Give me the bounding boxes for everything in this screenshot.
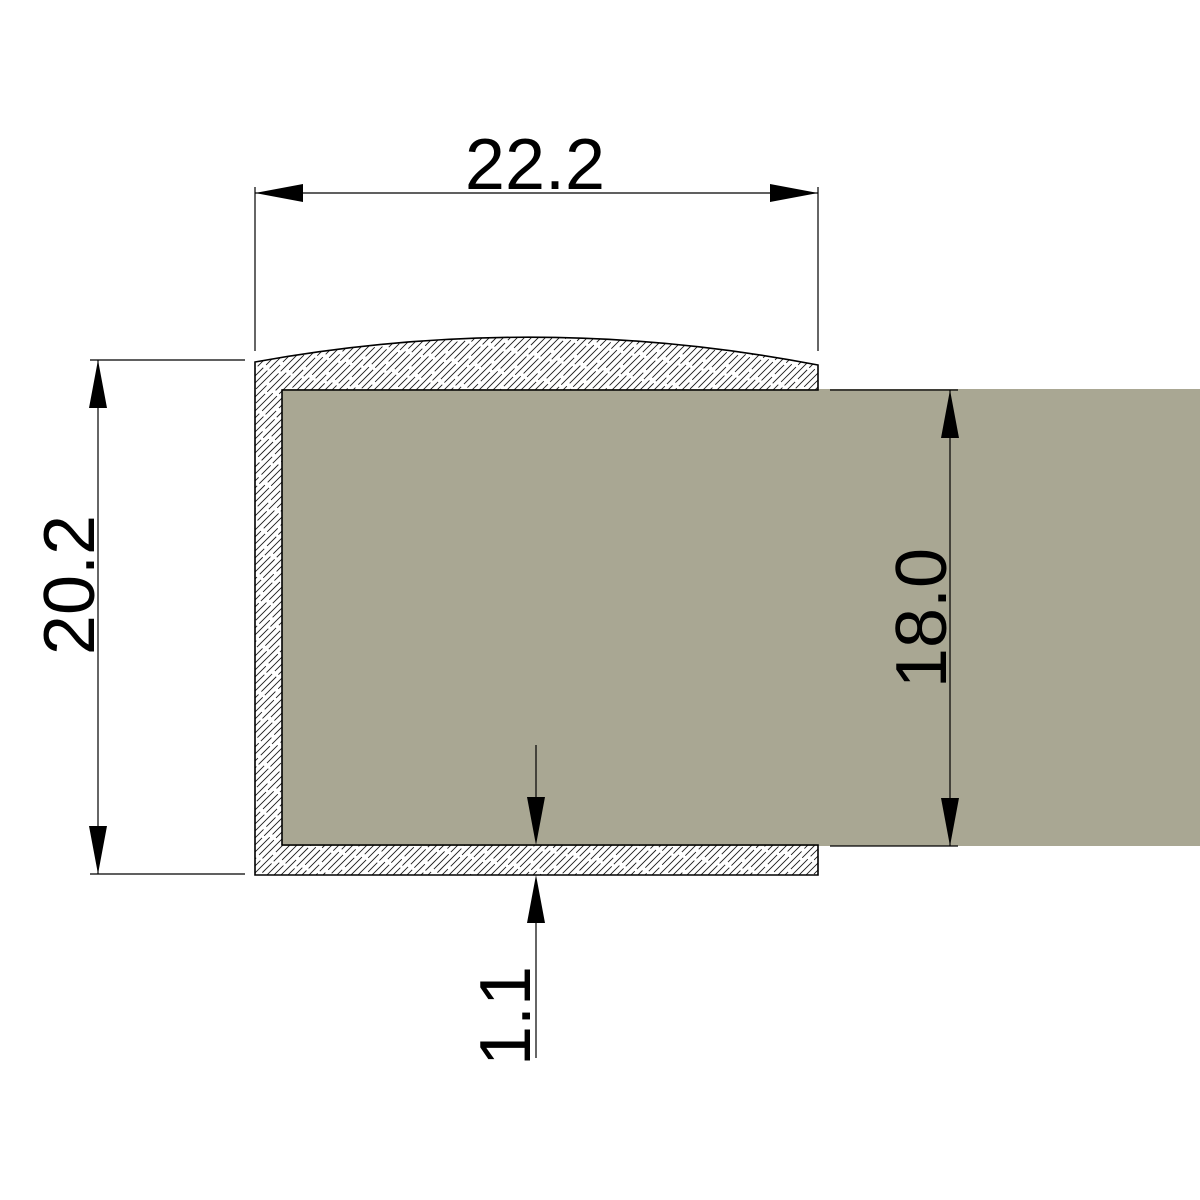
drawing-canvas: 22.2 20.2 18.0 1.1 — [0, 0, 1200, 1200]
dimension-panel-height-label: 18.0 — [882, 548, 962, 688]
arrowhead-left-icon — [255, 184, 303, 202]
dimension-outer-width: 22.2 — [255, 125, 818, 351]
panel-insert — [282, 389, 1200, 846]
arrowhead-down-icon — [89, 826, 107, 874]
dimension-wall-thickness-label: 1.1 — [466, 966, 546, 1066]
arrowhead-up-icon — [89, 360, 107, 408]
dimension-outer-height-label: 20.2 — [30, 515, 110, 655]
arrowhead-up-icon — [527, 875, 545, 923]
arrowhead-right-icon — [770, 184, 818, 202]
profile-drawing: 22.2 20.2 18.0 1.1 — [0, 0, 1200, 1200]
dimension-outer-height: 20.2 — [30, 360, 245, 874]
dimension-outer-width-label: 22.2 — [465, 125, 605, 205]
